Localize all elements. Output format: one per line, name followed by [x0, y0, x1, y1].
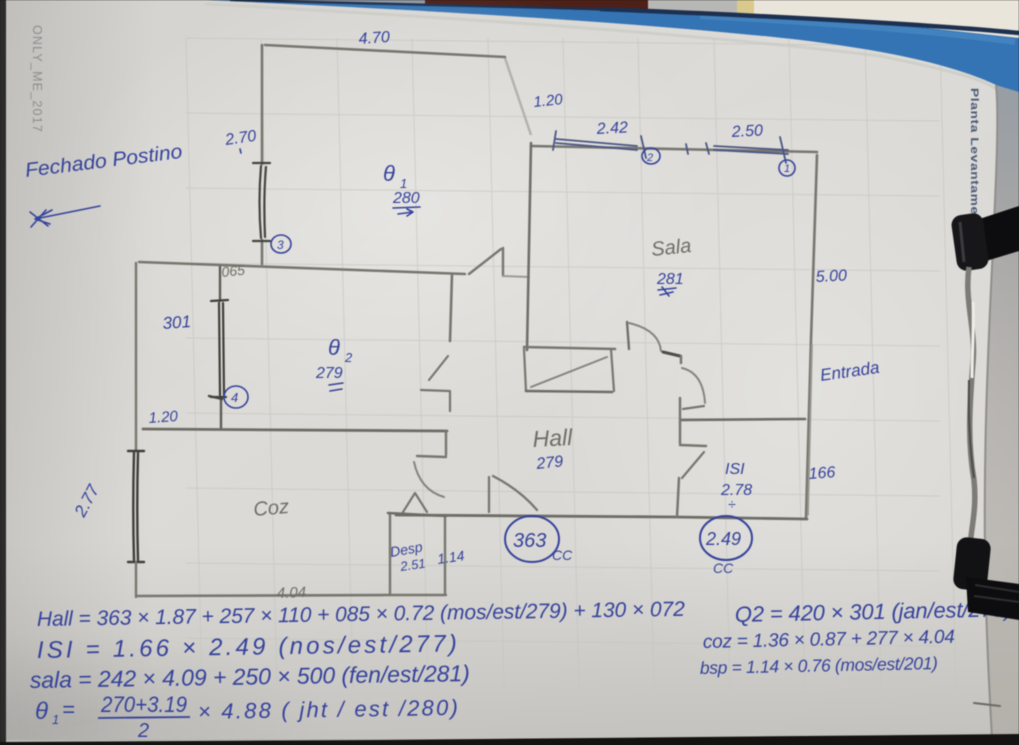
- svg-text:2.42: 2.42: [595, 119, 628, 138]
- svg-text:2.50: 2.50: [730, 122, 763, 141]
- svg-text:CC: CC: [552, 547, 573, 563]
- svg-text:301: 301: [162, 312, 192, 333]
- svg-text:270+3.19: 270+3.19: [100, 692, 187, 717]
- svg-text:Coz: Coz: [253, 496, 290, 521]
- svg-text:ISI: ISI: [725, 461, 745, 478]
- svg-text:2: 2: [344, 350, 353, 365]
- svg-text:280: 280: [392, 190, 420, 207]
- svg-text:4: 4: [231, 390, 238, 405]
- svg-text:CC: CC: [713, 560, 734, 576]
- svg-text:1: 1: [784, 163, 790, 175]
- svg-text:281: 281: [656, 271, 684, 288]
- svg-text:2.49: 2.49: [705, 529, 741, 549]
- svg-text:4.04: 4.04: [277, 584, 307, 602]
- svg-text:279: 279: [315, 365, 343, 382]
- svg-text:363: 363: [513, 530, 546, 552]
- svg-text:Sala: Sala: [650, 235, 692, 261]
- svg-text:θ: θ: [383, 161, 395, 186]
- svg-text:2: 2: [646, 152, 653, 164]
- svg-text:÷: ÷: [728, 496, 736, 512]
- svg-text:1: 1: [400, 176, 407, 191]
- svg-text:166: 166: [808, 464, 836, 483]
- svg-text:1: 1: [52, 712, 59, 727]
- svg-text:3: 3: [277, 238, 284, 252]
- svg-text:θ: θ: [328, 335, 340, 360]
- svg-text:=: =: [62, 697, 75, 722]
- svg-text:2.78: 2.78: [720, 482, 752, 499]
- svg-text:ONLY_ME_2017: ONLY_ME_2017: [30, 25, 44, 133]
- svg-text:279: 279: [535, 453, 564, 473]
- svg-text:065: 065: [221, 262, 246, 280]
- svg-text:4.70: 4.70: [358, 29, 390, 48]
- svg-text:1.20: 1.20: [533, 91, 564, 111]
- svg-text:θ: θ: [35, 698, 48, 725]
- svg-text:1.20: 1.20: [148, 408, 179, 427]
- svg-text:2: 2: [137, 720, 149, 742]
- svg-text:5.00: 5.00: [815, 267, 847, 286]
- svg-text:Hall: Hall: [532, 424, 574, 452]
